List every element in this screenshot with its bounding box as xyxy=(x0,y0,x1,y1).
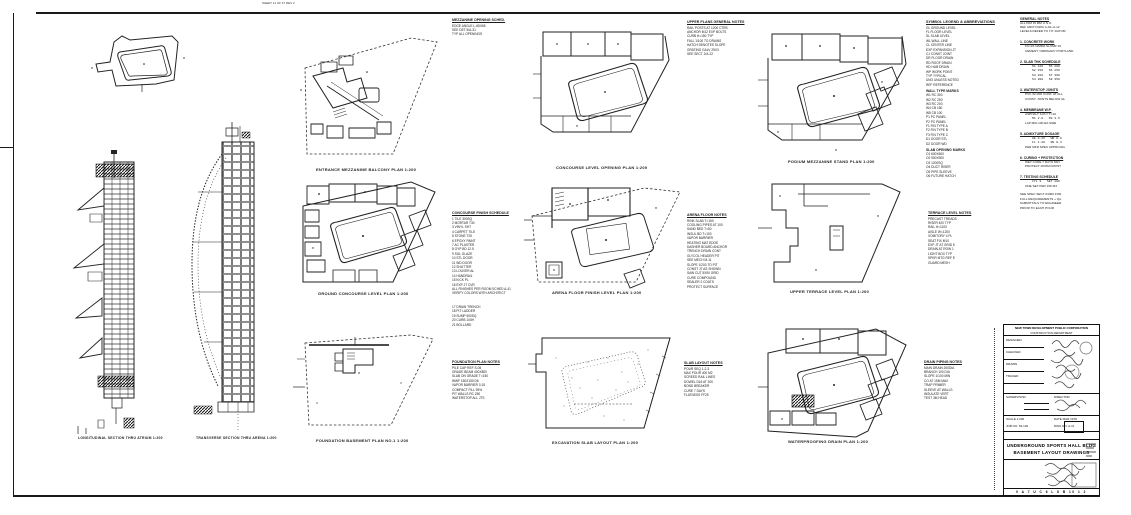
key-plan xyxy=(86,28,198,106)
legend-lines-3: O1 600X600O2 900X900O3 1200SQO4 DUCT RIS… xyxy=(926,152,1000,178)
notes-block-f: FOUNDATION PLAN NOTES PILE CAP REF S-05G… xyxy=(452,360,534,401)
plan-r1c3 xyxy=(758,28,910,156)
text-line xyxy=(1020,149,1106,153)
border-left xyxy=(13,13,14,496)
sheet-number-strip: 0 A 7 U C 6 L 8 B 10 1 2 xyxy=(1004,490,1099,494)
plan-r3c3 xyxy=(756,323,912,443)
border-top xyxy=(36,12,1100,14)
text-line: SEE SECT 2/A-22 xyxy=(687,52,767,56)
elevation-section-1 xyxy=(68,148,140,436)
label-checked: CHECKED xyxy=(1006,350,1021,354)
plan-r2c2 xyxy=(524,180,686,288)
plan-r3c1-caption: FOUNDATION BASEMENT PLAN NO.1 1:200 xyxy=(316,438,408,443)
notes-f-title: FOUNDATION PLAN NOTES xyxy=(452,360,534,364)
general-notes-column: GENERAL NOTESALL DIM IN MM U.N.O.REF ARC… xyxy=(1020,14,1106,210)
notes-block-g: SLAB LAYOUT NOTES POUR SEQ 1-2-3MAX POUR… xyxy=(684,361,762,397)
job-field: JOB NO. 53-102 xyxy=(1006,424,1028,428)
notes-d-title: ARENA FLOOR NOTES xyxy=(687,213,765,217)
title-block: NEW TOWN DEVELOPMENT PUBLIC CORPORATION … xyxy=(1003,324,1100,496)
legend-lines-1: GL GROUND LEVELFL FLOOR LEVELSL SLAB LEV… xyxy=(926,26,1000,88)
signature-scribbles xyxy=(1048,336,1098,392)
notes-b-lines: RAIL POSTS AT 1200 CTRSANCHOR M12 EXP BO… xyxy=(687,26,767,57)
label-supervisor: SUPERVISOR xyxy=(1006,395,1026,399)
notes-f-lines: PILE CAP REF S-05GRADE BEAM 400X800SLAB … xyxy=(452,366,534,401)
text-line xyxy=(1020,169,1106,173)
label-designed: DESIGNED xyxy=(1006,338,1022,342)
director-scribble xyxy=(1052,397,1098,413)
label-drawn: DRAWN xyxy=(1006,362,1017,366)
text-line xyxy=(1020,82,1106,86)
text-line: WATERSTOP ALL JTS xyxy=(452,396,534,400)
plan-r2c2-caption: ARENA FLOOR FINISH LEVEL PLAN 1:200 xyxy=(552,290,641,295)
approval-stamp-scribbles xyxy=(1042,461,1099,489)
notes-c-lines: 1 TILE 300SQ2 MORTAR T303 VINYL SHT4 CAR… xyxy=(452,217,530,296)
top-annotation: SHEET 11 OF 47 REV 2 xyxy=(262,1,295,5)
notes-e-title: TERRACE LEVEL NOTES xyxy=(928,211,1006,215)
fold-tick xyxy=(0,147,13,148)
text-line: REF REFERENCE xyxy=(926,83,1000,87)
plan-r1c1-caption: ENTRANCE MEZZANINE BALCONY PLAN 1:200 xyxy=(316,167,416,172)
text-line: D2 DOOR WD xyxy=(926,142,1000,146)
legend-title: SYMBOL LEGEND & ABBREVIATIONS xyxy=(926,20,1000,24)
text-line xyxy=(1020,125,1106,129)
text-line: FLATNESS FF25 xyxy=(684,393,762,397)
notes-g-lines: POUR SEQ 1-2-3MAX POUR 400 M2SCREED RAIL… xyxy=(684,367,762,398)
plan-r2c3-caption: UPPER TERRACE LEVEL PLAN 1:200 xyxy=(790,289,869,294)
plan-r3c3-caption: WATERPROOFING DRAIN PLAN 1:200 xyxy=(788,439,868,444)
plan-r2c3 xyxy=(758,176,908,288)
plan-r1c3-caption: PODIUM MEZZANINE STAND PLAN 1:200 xyxy=(788,159,875,164)
notes-block-b: UPPER PLANS GENERAL NOTES RAIL POSTS AT … xyxy=(687,20,767,56)
plan-r2c1-caption: GROUND CONCOURSE LEVEL PLAN 1:200 xyxy=(318,291,408,296)
label-traced: TRACED xyxy=(1006,374,1018,378)
text-line: 21 BOLLARD xyxy=(452,323,530,327)
text-line xyxy=(1020,101,1106,105)
notes-block-c2: 17 DRAIN TRENCH18 PIT LADDER19 SUMP 600S… xyxy=(452,305,530,327)
text-line: PRIOR TO EACH POUR xyxy=(1020,206,1106,210)
text-line xyxy=(1020,53,1106,57)
drawing-sheet: SHEET 11 OF 47 REV 2 xyxy=(0,0,1131,515)
legend-column: SYMBOL LEGEND & ABBREVIATIONS GL GROUND … xyxy=(926,20,1000,179)
notes-d-lines: RINK SLAB T=150COOLING PIPES AT 100SAND … xyxy=(687,219,765,290)
notes-block-a: MEZZANINE OPENING SCHED. EDGE ANGLE L-65… xyxy=(452,18,534,37)
plan-r1c2 xyxy=(533,28,671,146)
text-line: O6 FUTURE HATCH xyxy=(926,174,1000,178)
notes-e-lines: PRECAST TREADSRISER 400 TYPRAIL H=1100AI… xyxy=(928,217,1006,265)
plan-r3c1 xyxy=(293,323,439,431)
org-name: NEW TOWN DEVELOPMENT PUBLIC CORPORATION xyxy=(1004,326,1099,330)
elevation-1-caption: LONGITUDINAL SECTION THRU ATRIUM 1:200 xyxy=(78,436,163,440)
notes-c2-lines: 17 DRAIN TRENCH18 PIT LADDER19 SUMP 600S… xyxy=(452,305,530,327)
plan-r3c2-caption: EXCAVATION SLAB LAYOUT PLAN 1:200 xyxy=(552,440,638,445)
text-line: TYP ALL OPENINGS xyxy=(452,32,534,36)
plan-r3c2 xyxy=(528,328,680,434)
text-line: GUARD MESH xyxy=(928,261,1006,265)
plan-r1c1 xyxy=(293,28,441,160)
text-line: PROTECT SURFACE xyxy=(687,285,765,289)
text-line: VERIFY COLORS WITH ARCHITECT xyxy=(452,291,530,295)
notes-b-title: UPPER PLANS GENERAL NOTES xyxy=(687,20,767,24)
notes-g-title: SLAB LAYOUT NOTES xyxy=(684,361,762,365)
notes-a-lines: EDGE ANGLE L-65X65SEE DET 5/A-31TYP ALL … xyxy=(452,24,534,37)
org-dept: CONSTRUCTION DEPARTMENT xyxy=(1004,331,1099,335)
plan-r1c2-caption: CONCOURSE LEVEL OPENING PLAN 1:200 xyxy=(556,165,647,170)
notes-a-title: MEZZANINE OPENING SCHED. xyxy=(452,18,534,22)
notes-block-d: ARENA FLOOR NOTES RINK SLAB T=150COOLING… xyxy=(687,213,765,289)
plan-r2c1 xyxy=(293,176,439,288)
title-side-marks xyxy=(1084,441,1099,459)
notes-block-c: CONCOURSE FINISH SCHEDULE 1 TILE 300SQ2 … xyxy=(452,211,530,296)
notes-block-e: TERRACE LEVEL NOTES PRECAST TREADSRISER … xyxy=(928,211,1006,265)
border-bottom xyxy=(13,495,1100,497)
text-line xyxy=(1020,34,1106,38)
scale-field: SCALE 1:200 xyxy=(1006,417,1024,421)
fold-line xyxy=(994,328,995,490)
notes-c-title: CONCOURSE FINISH SCHEDULE xyxy=(452,211,530,215)
stamp-box-small xyxy=(1064,421,1084,433)
elevation-section-2 xyxy=(178,122,260,434)
legend-lines-2: W1 RC 300W2 RC 250W3 RC 200W4 CB 150W5 C… xyxy=(926,93,1000,146)
elevation-2-caption: TRANSVERSE SECTION THRU ARENA 1:200 xyxy=(196,436,277,440)
